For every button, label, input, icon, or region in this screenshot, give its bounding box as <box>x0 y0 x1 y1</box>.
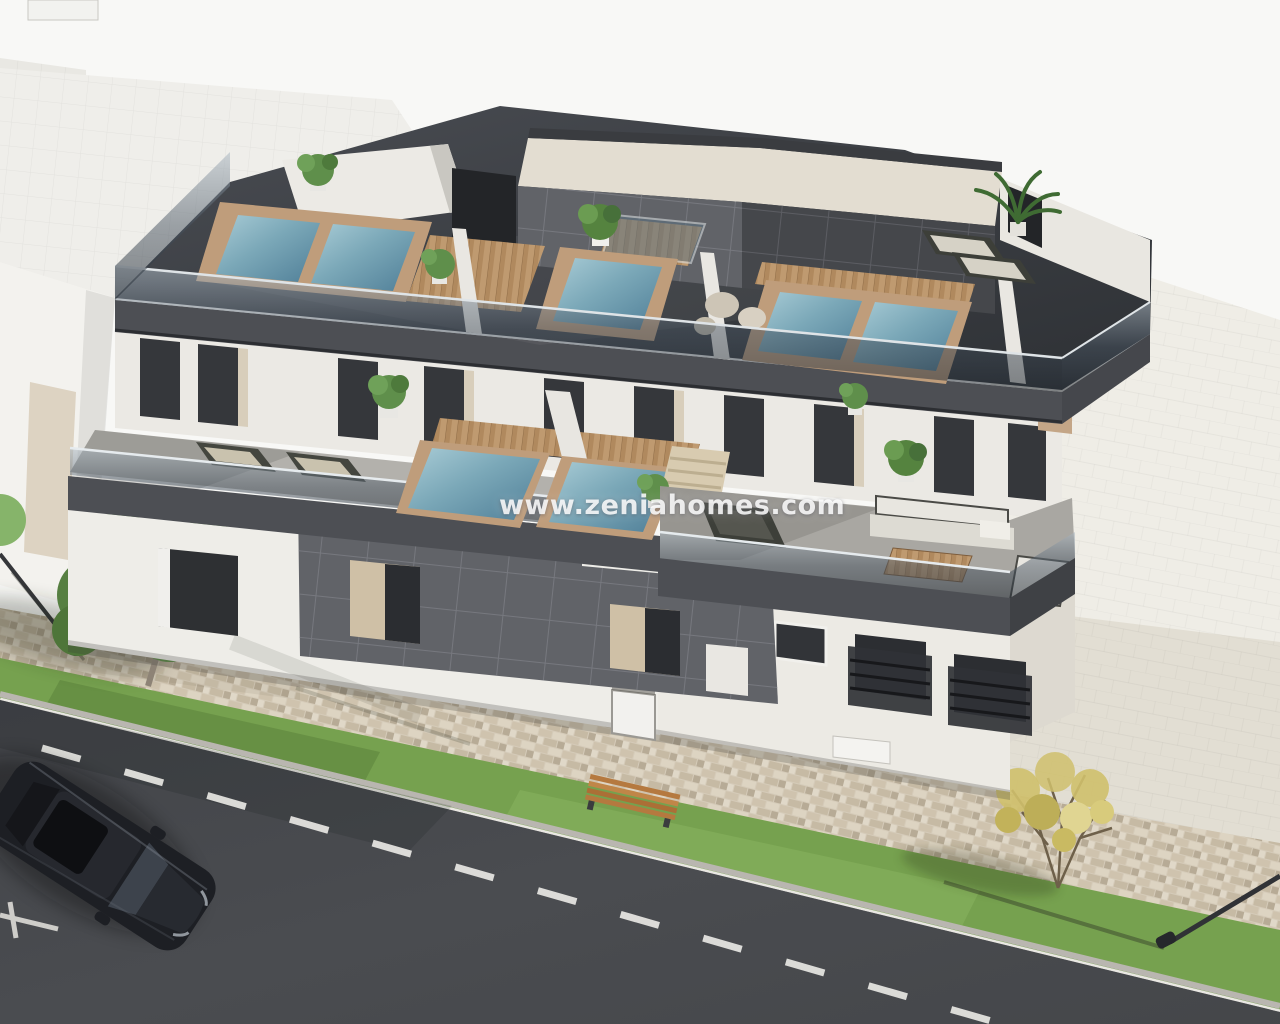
balcony-railing <box>848 646 932 716</box>
mid-window-2-reveal <box>238 348 248 427</box>
entry-door <box>612 690 655 740</box>
panel-opening-2-glass <box>645 608 680 676</box>
mid-window-10 <box>1008 423 1046 501</box>
mid-window-8-reveal <box>854 408 864 487</box>
panel-opening-1-glass <box>385 564 420 644</box>
balcony-2 <box>948 654 1032 736</box>
mid-window-2 <box>198 344 238 426</box>
mid-window-1 <box>140 338 180 420</box>
panel-opening-3 <box>706 644 748 696</box>
mid-window-7 <box>724 395 764 477</box>
balcony-railing <box>948 666 1032 736</box>
watermark-text: www.zeniahomes.com <box>499 490 799 521</box>
mid-window-9 <box>934 416 974 496</box>
mid-window-3 <box>338 358 378 440</box>
render-scene: www.zeniahomes.com <box>0 0 1280 1024</box>
garage-reveal <box>158 548 170 628</box>
balcony-1 <box>848 634 932 716</box>
sofa-cushion <box>980 520 1010 540</box>
ground-window-right <box>775 622 826 665</box>
mid-window-8 <box>814 404 854 486</box>
far-rooftop-box <box>28 0 98 20</box>
